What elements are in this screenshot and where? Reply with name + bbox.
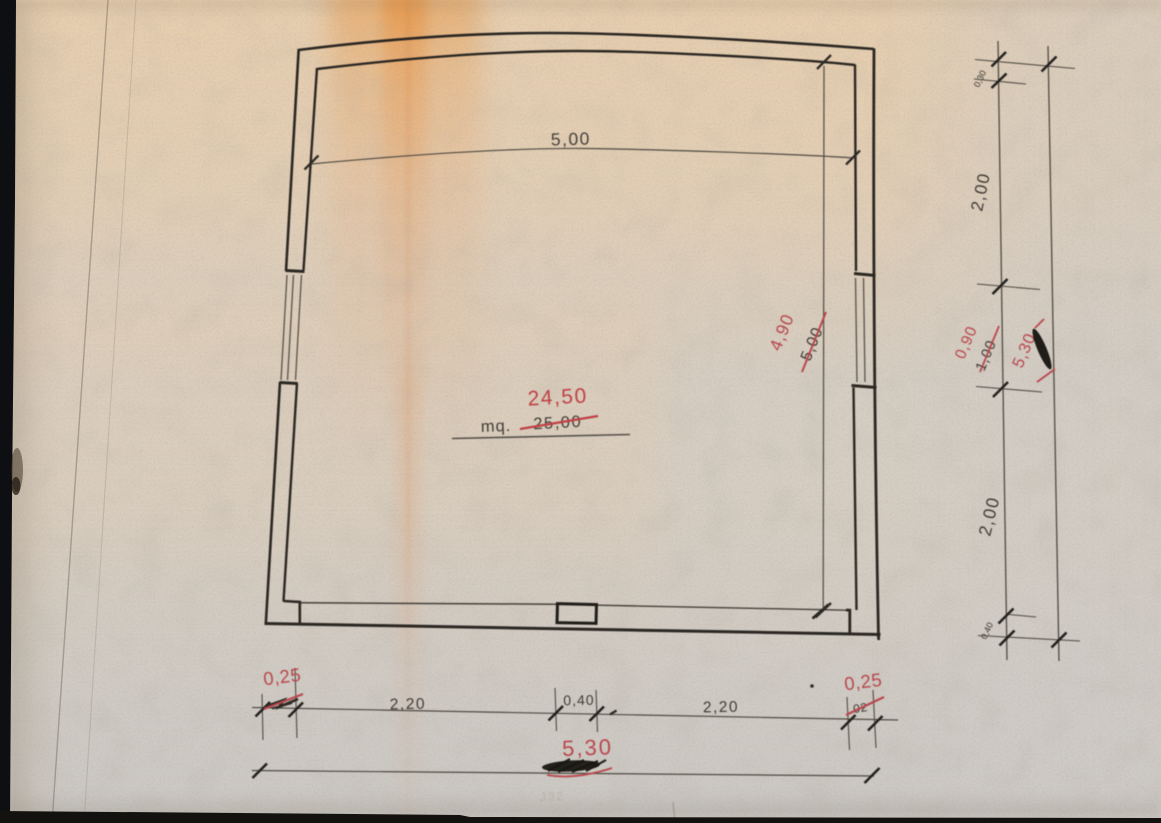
svg-text:2,20: 2,20 bbox=[390, 696, 426, 714]
svg-text:mq.: mq. bbox=[481, 417, 512, 436]
svg-text:2,20: 2,20 bbox=[703, 699, 739, 717]
svg-text:5,30: 5,30 bbox=[562, 734, 614, 761]
svg-text:J32: J32 bbox=[540, 789, 566, 804]
svg-text:0,40: 0,40 bbox=[563, 692, 595, 709]
svg-text:5,00: 5,00 bbox=[551, 128, 592, 149]
svg-text:24,50: 24,50 bbox=[527, 384, 588, 410]
